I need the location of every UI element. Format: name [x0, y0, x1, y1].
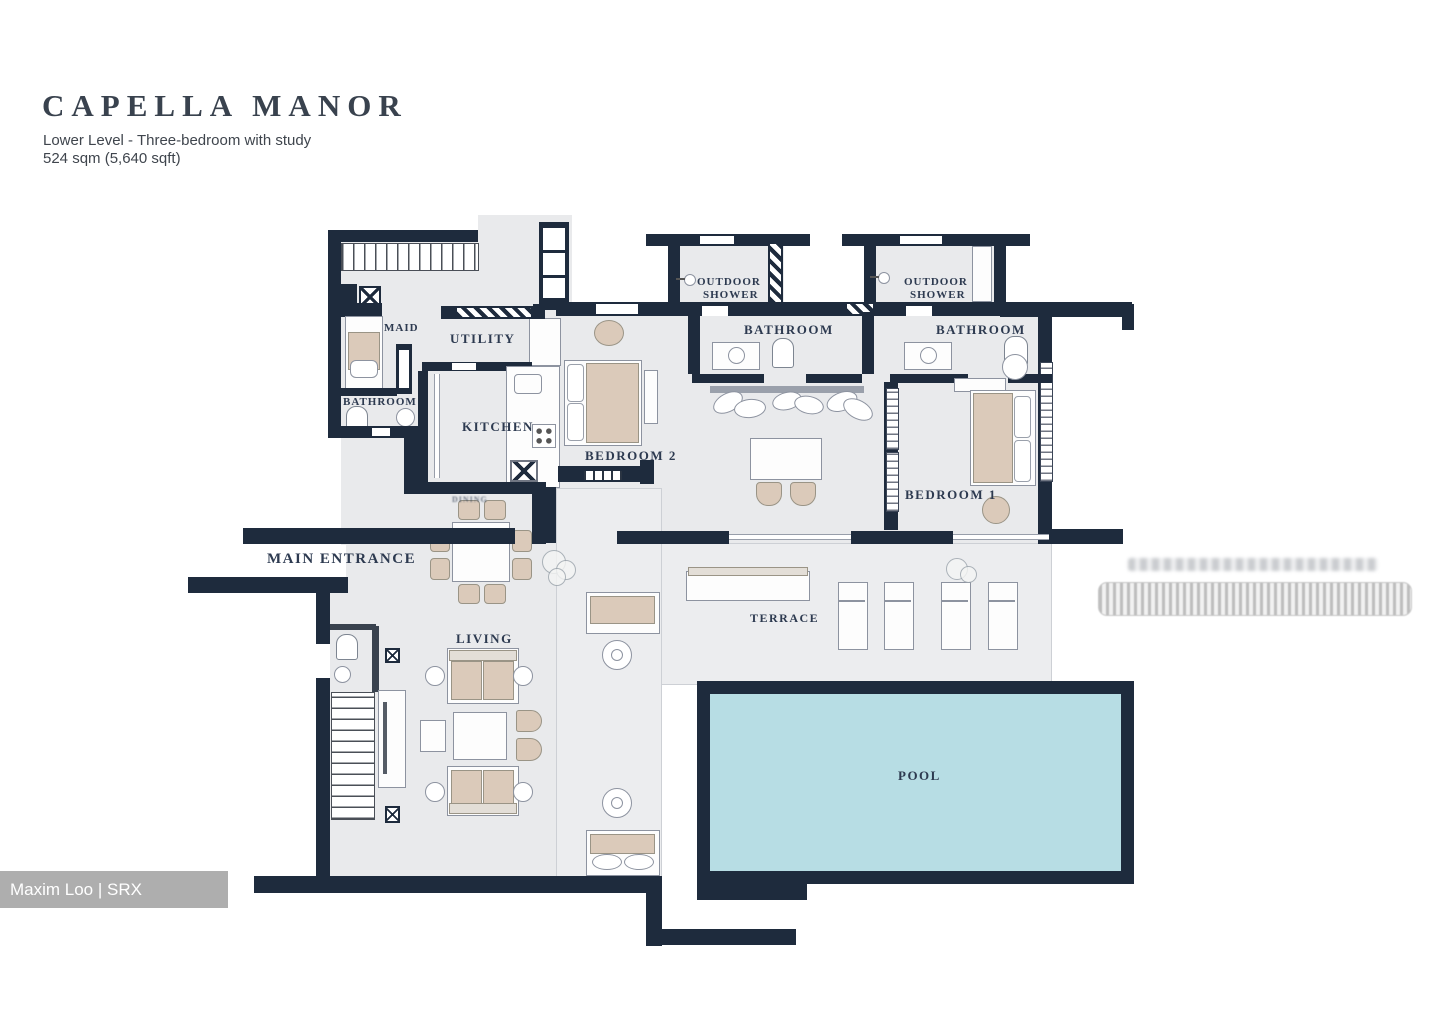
lounger-line — [885, 600, 911, 602]
wall-segment — [418, 371, 428, 483]
room-label-bathroom-left: BATHROOM — [744, 322, 834, 338]
stool — [790, 482, 816, 506]
room-label-outdoor-shower-1-line1: OUTDOOR — [697, 276, 761, 288]
floor-plan-page: CAPELLA MANOR Lower Level - Three-bedroo… — [0, 0, 1440, 1012]
side-table — [513, 782, 533, 802]
sofa-cushion — [451, 770, 482, 804]
plant-icon — [548, 568, 566, 586]
window-gap — [700, 236, 734, 244]
daybed-cushion — [590, 834, 655, 854]
watermark: Maxim Loo | SRX PROPERTY — [0, 871, 228, 908]
outdoor-sofa-back — [688, 567, 808, 576]
wall-segment — [328, 303, 382, 317]
wall-segment — [864, 240, 876, 304]
hatched-wall — [455, 306, 533, 319]
dining-chair — [484, 584, 506, 604]
shaft-box — [385, 648, 400, 663]
sun-lounger — [941, 582, 971, 650]
dining-chair — [458, 584, 480, 604]
sun-lounger — [988, 582, 1018, 650]
plant-icon — [960, 566, 977, 583]
sofa-cushion — [483, 770, 514, 804]
side-table — [513, 666, 533, 686]
room-label-kitchen: KITCHEN — [462, 419, 534, 435]
wall-segment — [328, 230, 478, 242]
shaft-box — [385, 806, 400, 823]
wall-segment — [862, 312, 874, 374]
wall-segment — [316, 591, 330, 882]
sofa-back — [449, 650, 517, 661]
room-label-maid-bathroom: BATHROOM — [343, 396, 417, 408]
closet-box — [543, 278, 565, 298]
entrance-wall-upper — [243, 528, 515, 544]
room-label-terrace: TERRACE — [750, 611, 819, 626]
room-label-dining: DINING — [452, 495, 488, 504]
window-gap — [900, 236, 942, 244]
shower-head-icon — [684, 274, 696, 286]
page-subtitle: Lower Level - Three-bedroom with study — [43, 132, 311, 149]
wall-segment — [692, 374, 764, 383]
door-gap — [702, 306, 728, 316]
sofa-back — [449, 803, 517, 814]
dining-chair — [512, 558, 532, 580]
wall-segment — [688, 312, 700, 374]
wall-segment — [404, 482, 534, 494]
wall-segment — [328, 230, 341, 438]
sun-lounger — [884, 582, 914, 650]
maid-bed-pillow — [350, 360, 378, 378]
round-table-dot — [611, 797, 623, 809]
page-title: CAPELLA MANOR — [42, 88, 408, 124]
wall-segment — [806, 374, 862, 383]
staircase-upper — [341, 243, 479, 271]
bed-blanket — [973, 393, 1013, 483]
wall-segment — [1049, 529, 1123, 544]
glass-door — [434, 374, 440, 478]
stool — [756, 482, 782, 506]
powder-wall — [330, 624, 376, 630]
side-table — [1002, 354, 1028, 380]
closet-box — [543, 253, 565, 275]
daybed-pillow — [624, 854, 654, 870]
hatched-pillar — [768, 242, 783, 304]
pool-wall-foot — [697, 878, 807, 900]
toilet-icon — [772, 338, 794, 368]
daybed-pillow — [592, 854, 622, 870]
lounger-line — [942, 600, 968, 602]
oven-icon — [510, 460, 538, 482]
lounger-line — [839, 600, 865, 602]
room-label-bedroom2: BEDROOM 2 — [585, 448, 677, 464]
bed-pillow — [567, 364, 584, 402]
powder-wall — [372, 626, 379, 692]
shower-bench — [972, 246, 992, 302]
bed-blanket — [586, 363, 639, 443]
bed-pillow — [1014, 440, 1031, 482]
room-label-bedroom1: BEDROOM 1 — [905, 487, 997, 503]
shower-head-icon — [878, 272, 890, 284]
faded-landscape-caption — [1128, 558, 1378, 571]
door-gap — [906, 306, 932, 316]
door-gap — [316, 644, 330, 678]
room-label-pool: POOL — [898, 768, 941, 784]
sink-icon — [728, 347, 745, 364]
round-table-dot — [611, 649, 623, 661]
room-label-outdoor-shower-2-line2: SHOWER — [910, 289, 966, 301]
shower-arm — [676, 278, 685, 280]
study-table — [750, 438, 822, 480]
wall-segment — [1000, 304, 1134, 317]
staircase-lower — [331, 692, 375, 820]
room-label-maid: MAID — [384, 322, 419, 334]
coffee-table — [453, 712, 507, 760]
wall-segment — [646, 929, 796, 945]
toilet-icon — [336, 634, 358, 660]
glass-door — [729, 534, 851, 540]
wall-segment — [851, 531, 953, 544]
armchair — [516, 710, 542, 732]
dining-chair — [430, 558, 450, 580]
door-gap — [372, 428, 390, 436]
cooktop-icon — [532, 424, 556, 448]
sofa-cushion — [483, 661, 514, 700]
side-table — [425, 782, 445, 802]
tv-icon — [383, 702, 387, 774]
kitchen-sink — [514, 374, 542, 394]
dresser — [644, 370, 658, 424]
wall-segment — [404, 438, 418, 486]
door-gap — [452, 363, 476, 370]
daybed-cushion — [590, 596, 655, 624]
wall-segment — [994, 240, 1006, 304]
closet-box — [543, 228, 565, 250]
sofa-cushion — [451, 661, 482, 700]
wall-segment — [1122, 304, 1134, 330]
side-table — [420, 720, 446, 752]
area-text: 524 sqm (5,640 sqft) — [43, 150, 181, 167]
room-label-main-entrance: MAIN ENTRANCE — [267, 551, 416, 568]
armchair — [594, 320, 624, 346]
closet-box — [399, 350, 409, 388]
bed-pillow — [1014, 396, 1031, 438]
wall-segment — [533, 304, 545, 319]
room-label-bathroom-right: BATHROOM — [936, 322, 1026, 338]
wall-segment — [341, 388, 397, 396]
lounger-line — [989, 600, 1015, 602]
wardrobe — [886, 388, 899, 450]
armchair — [516, 738, 542, 761]
room-label-living: LIVING — [456, 631, 513, 647]
wall-segment — [617, 531, 729, 544]
faded-landscape-hedge — [1098, 582, 1412, 616]
room-label-outdoor-shower-2-line1: OUTDOOR — [904, 276, 968, 288]
wall-segment — [668, 240, 680, 304]
appliance-column — [529, 318, 561, 366]
sink-icon — [334, 666, 351, 683]
sink-icon — [396, 408, 415, 427]
wall-segment — [254, 876, 662, 893]
wall-segment — [544, 487, 556, 543]
room-label-utility: UTILITY — [450, 331, 515, 347]
dining-chair — [512, 530, 532, 552]
sun-lounger — [838, 582, 868, 650]
floor-deck-strip — [556, 488, 662, 880]
glass-door — [953, 534, 1049, 540]
shower-arm — [870, 276, 879, 278]
window-gap — [596, 304, 638, 314]
wardrobe — [886, 452, 899, 512]
side-table — [425, 666, 445, 686]
window-mullions — [582, 469, 624, 482]
sink-icon — [920, 347, 937, 364]
wall-segment — [441, 306, 455, 319]
bed-pillow — [567, 403, 584, 441]
room-label-outdoor-shower-1-line2: SHOWER — [703, 289, 759, 301]
